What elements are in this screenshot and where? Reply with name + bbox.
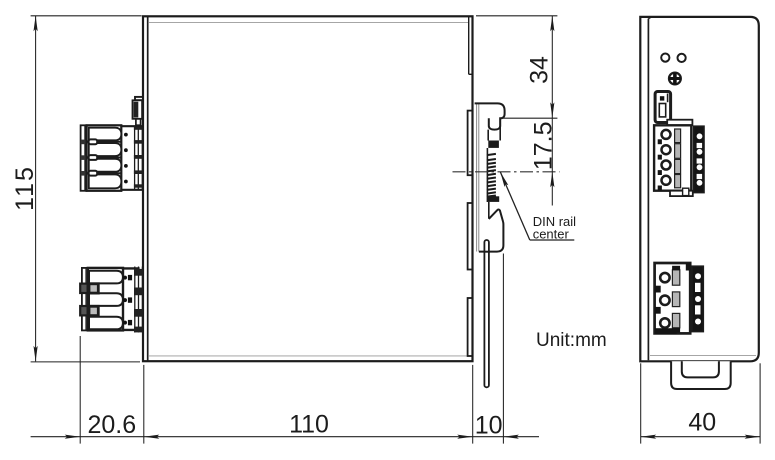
svg-text:10: 10 — [475, 412, 503, 440]
svg-text:center: center — [533, 227, 570, 242]
svg-text:110: 110 — [289, 411, 329, 439]
svg-text:Unit:mm: Unit:mm — [536, 330, 607, 351]
svg-text:115: 115 — [11, 165, 39, 211]
svg-text:20.6: 20.6 — [87, 411, 136, 439]
svg-text:40: 40 — [688, 409, 716, 437]
svg-text:34: 34 — [526, 56, 554, 84]
svg-text:17.5: 17.5 — [530, 121, 558, 170]
